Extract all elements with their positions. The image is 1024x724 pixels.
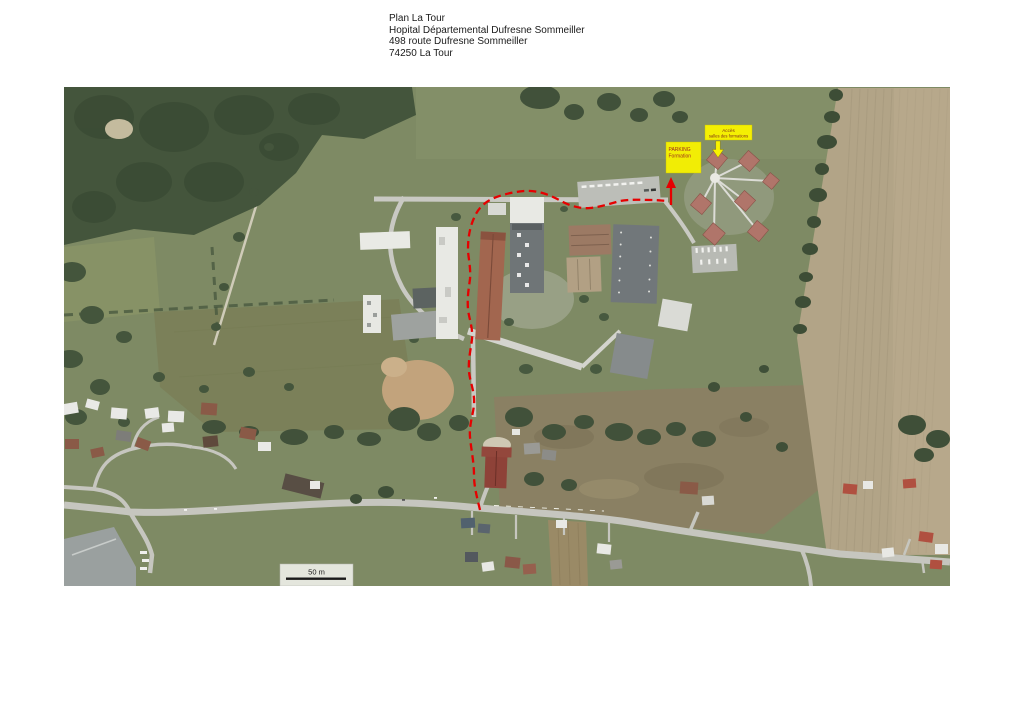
header-street: 498 route Dufresne Sommeiller <box>389 36 585 48</box>
scale-bar-line <box>286 578 346 580</box>
scale-bar: 50 m <box>280 564 353 586</box>
header-city: 74250 La Tour <box>389 48 585 60</box>
satellite-map: PARKING Formation Accès salles des forma… <box>64 87 950 586</box>
address-header: Plan La Tour Hopital Départemental Dufre… <box>389 13 585 59</box>
access-label-line2: salles des formations <box>709 134 748 139</box>
parking-label-box: PARKING Formation <box>666 142 701 173</box>
header-hospital-name: Hopital Départemental Dufresne Sommeille… <box>389 25 585 37</box>
header-title: Plan La Tour <box>389 13 585 25</box>
satellite-map-canvas: PARKING Formation Accès salles des forma… <box>64 87 950 586</box>
parking-label-line1: PARKING <box>669 147 691 153</box>
access-label-line1: Accès <box>722 128 735 133</box>
scale-bar-label: 50 m <box>308 568 325 577</box>
parking-label-line2: Formation <box>669 154 692 160</box>
page: Plan La Tour Hopital Départemental Dufre… <box>0 0 1024 724</box>
